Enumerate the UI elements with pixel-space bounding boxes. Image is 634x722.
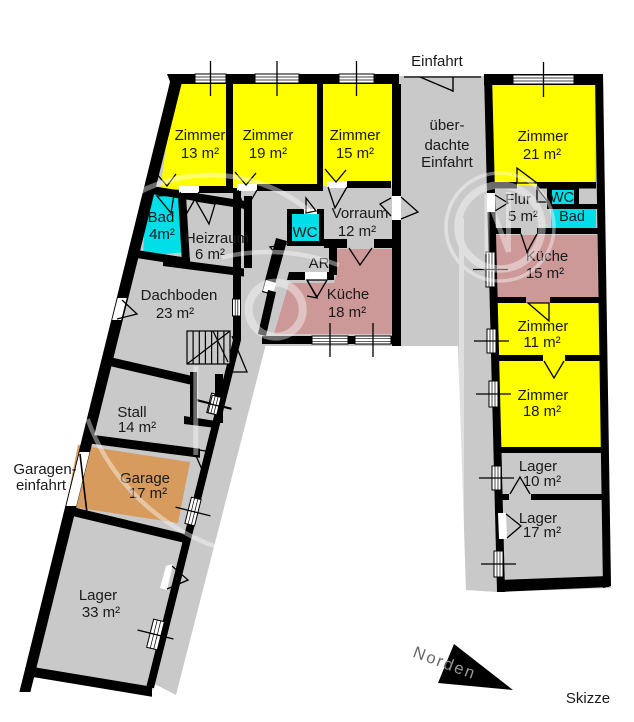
svg-text:15 m²: 15 m² bbox=[526, 265, 564, 282]
svg-text:Bad: Bad bbox=[148, 209, 175, 226]
svg-text:33 m²: 33 m² bbox=[82, 604, 120, 621]
svg-text:WC: WC bbox=[293, 224, 318, 241]
svg-text:Küche: Küche bbox=[327, 286, 370, 303]
svg-text:Zimmer: Zimmer bbox=[330, 127, 381, 144]
svg-text:einfahrt: einfahrt bbox=[16, 477, 67, 494]
svg-text:19 m²: 19 m² bbox=[249, 145, 287, 162]
svg-text:über-: über- bbox=[429, 117, 464, 134]
svg-text:11 m²: 11 m² bbox=[523, 334, 560, 351]
svg-text:Zimmer: Zimmer bbox=[518, 318, 569, 335]
svg-text:6 m²: 6 m² bbox=[195, 246, 225, 263]
svg-text:12 m²: 12 m² bbox=[338, 223, 376, 240]
svg-text:4m²: 4m² bbox=[149, 226, 175, 243]
svg-text:Garagen-: Garagen- bbox=[13, 461, 76, 478]
svg-text:17 m²: 17 m² bbox=[523, 524, 561, 541]
svg-text:14 m²: 14 m² bbox=[118, 419, 156, 436]
svg-text:Heizraum: Heizraum bbox=[185, 230, 249, 247]
svg-text:Zimmer: Zimmer bbox=[518, 128, 569, 145]
svg-text:Bad: Bad bbox=[559, 209, 585, 225]
svg-text:13 m²: 13 m² bbox=[181, 145, 219, 162]
svg-text:Zimmer: Zimmer bbox=[243, 127, 294, 144]
svg-text:10 m²: 10 m² bbox=[523, 473, 561, 490]
svg-text:Dachboden: Dachboden bbox=[141, 287, 218, 304]
svg-text:18 m²: 18 m² bbox=[328, 304, 366, 321]
svg-text:Lager: Lager bbox=[79, 587, 117, 604]
svg-text:WC: WC bbox=[550, 190, 574, 206]
svg-text:Vorraum: Vorraum bbox=[332, 205, 389, 222]
svg-text:23 m²: 23 m² bbox=[156, 305, 194, 322]
svg-text:Einfahrt: Einfahrt bbox=[411, 53, 464, 70]
svg-text:Zimmer: Zimmer bbox=[175, 127, 226, 144]
svg-text:Einfahrt: Einfahrt bbox=[421, 154, 474, 171]
svg-text:5 m²: 5 m² bbox=[508, 208, 538, 225]
svg-text:Zimmer: Zimmer bbox=[518, 387, 569, 404]
svg-text:15 m²: 15 m² bbox=[336, 145, 374, 162]
svg-text:21 m²: 21 m² bbox=[523, 146, 561, 163]
svg-text:Skizze: Skizze bbox=[566, 690, 610, 707]
svg-text:18 m²: 18 m² bbox=[523, 403, 561, 420]
svg-text:dachte: dachte bbox=[424, 137, 469, 154]
